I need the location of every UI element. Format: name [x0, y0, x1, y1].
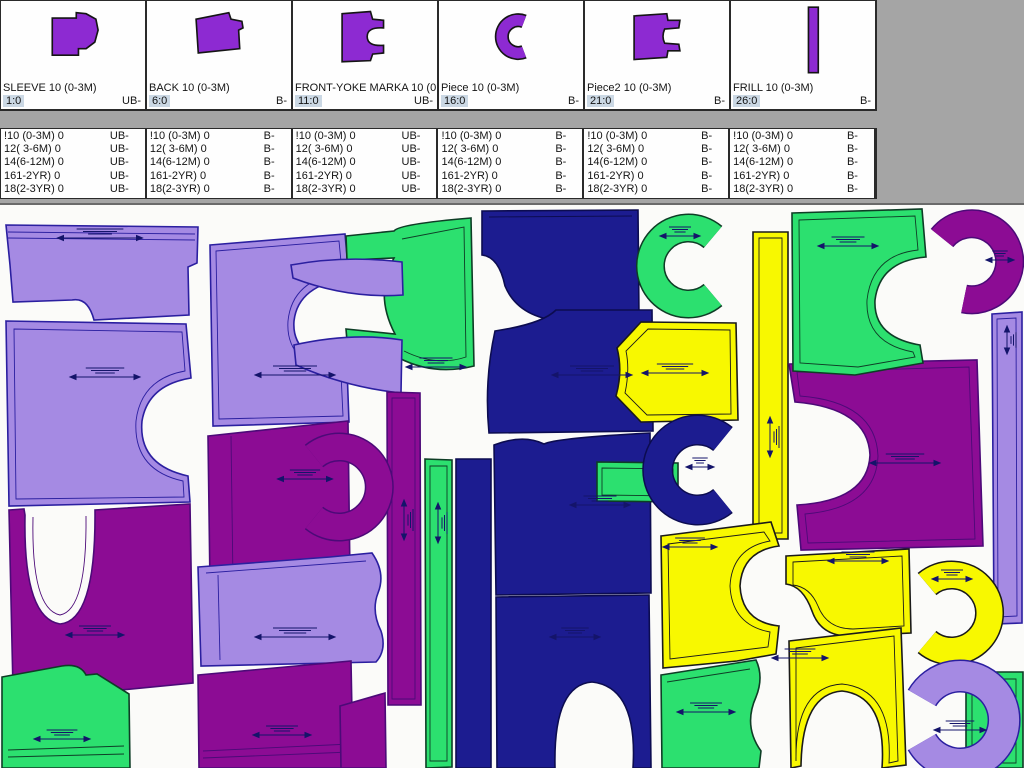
pattern-piece-yellow-piece-2[interactable] [786, 549, 911, 636]
piece-index-chip: 6:0 [149, 95, 170, 107]
piece-thumbnail [179, 5, 259, 77]
size-suffix: UB- [402, 130, 421, 143]
size-label: 12( 3-6M) 0 [587, 143, 644, 156]
piece-name: BACK 10 (0-3M) [149, 82, 290, 94]
size-label: 14(6-12M) 0 [441, 156, 501, 169]
marker-canvas[interactable] [0, 205, 1024, 768]
pattern-piece-bottom-purple[interactable] [198, 661, 353, 768]
pattern-piece-strip-lavender-right[interactable] [992, 312, 1022, 624]
size-row: 161-2YR) 0B- [733, 170, 874, 183]
size-row: 161-2YR) 0B- [150, 170, 291, 183]
piece-thumbnail [33, 5, 113, 77]
piece-index-chip: 26:0 [733, 95, 760, 107]
pattern-piece-sleeve-lavender[interactable] [198, 553, 383, 666]
marker-area [0, 203, 1024, 768]
size-label: 161-2YR) 0 [296, 170, 352, 183]
size-row: 12( 3-6M) 0B- [733, 143, 874, 156]
pattern-piece-green-bottom-mid[interactable] [661, 660, 761, 768]
piece-name: SLEEVE 10 (0-3M) [3, 82, 144, 94]
size-suffix: UB- [402, 170, 421, 183]
size-row: !10 (0-3M) 0B- [150, 130, 291, 143]
size-suffix: B- [555, 156, 566, 169]
piece-name: FRONT-YOKE MARKA 10 (0-3M) [295, 82, 436, 94]
size-label: !10 (0-3M) 0 [733, 130, 793, 143]
size-suffix: B- [847, 183, 858, 196]
size-suffix: B- [264, 143, 275, 156]
piece-card-row: SLEEVE 10 (0-3M)1:0UB-BACK 10 (0-3M)6:0B… [0, 0, 877, 111]
size-suffix: B- [847, 156, 858, 169]
pattern-piece-body-navy-4[interactable] [496, 595, 651, 768]
grain-line [686, 458, 714, 470]
size-list-box[interactable]: !10 (0-3M) 0B-12( 3-6M) 0B-14(6-12M) 0B-… [147, 129, 293, 198]
piece-suffix: B- [714, 95, 725, 107]
piece-index-chip: 16:0 [441, 95, 468, 107]
pattern-piece-strip-navy[interactable] [456, 459, 491, 768]
size-label: 14(6-12M) 0 [296, 156, 356, 169]
size-label: !10 (0-3M) 0 [150, 130, 210, 143]
piece-card-footer: 1:0UB- [3, 95, 141, 107]
size-row: 12( 3-6M) 0B- [587, 143, 728, 156]
pattern-piece-big-purple-right[interactable] [789, 360, 983, 550]
piece-card-footer: 26:0B- [733, 95, 871, 107]
seam-line [33, 516, 86, 615]
piece-thumbnail [617, 5, 697, 77]
size-suffix: B- [264, 156, 275, 169]
piece-index-chip: 1:0 [3, 95, 24, 107]
size-label: 12( 3-6M) 0 [4, 143, 61, 156]
size-suffix: B- [847, 143, 858, 156]
size-label: 12( 3-6M) 0 [150, 143, 207, 156]
app-window: SLEEVE 10 (0-3M)1:0UB-BACK 10 (0-3M)6:0B… [0, 0, 1024, 768]
piece-suffix: B- [860, 95, 871, 107]
piece-name: Piece 10 (0-3M) [441, 82, 582, 94]
piece-suffix: UB- [414, 95, 433, 107]
size-label: !10 (0-3M) 0 [441, 130, 501, 143]
size-label: 14(6-12M) 0 [150, 156, 210, 169]
pattern-piece-yellow-mid[interactable] [616, 322, 738, 422]
size-list-box[interactable]: !10 (0-3M) 0B-12( 3-6M) 0B-14(6-12M) 0B-… [730, 129, 876, 198]
size-suffix: B- [555, 130, 566, 143]
pattern-piece-strip-yellow[interactable] [753, 232, 788, 539]
piece-thumbnail [325, 5, 405, 77]
pattern-piece-body-navy-3[interactable] [494, 433, 651, 595]
piece-card[interactable]: Piece 10 (0-3M)16:0B- [439, 1, 585, 109]
size-suffix: B- [847, 170, 858, 183]
size-label: 12( 3-6M) 0 [733, 143, 790, 156]
size-row: 12( 3-6M) 0B- [441, 143, 582, 156]
size-label: 14(6-12M) 0 [733, 156, 793, 169]
piece-card[interactable]: Piece2 10 (0-3M)21:0B- [585, 1, 731, 109]
size-label: 18(2-3YR) 0 [150, 183, 210, 196]
size-suffix: UB- [110, 156, 129, 169]
size-label: 161-2YR) 0 [587, 170, 643, 183]
size-row: 14(6-12M) 0B- [733, 156, 874, 169]
size-suffix: UB- [110, 143, 129, 156]
size-row: 14(6-12M) 0UB- [296, 156, 437, 169]
size-row: 18(2-3YR) 0B- [587, 183, 728, 196]
size-suffix: B- [701, 183, 712, 196]
size-row: 12( 3-6M) 0B- [150, 143, 291, 156]
size-label: 18(2-3YR) 0 [441, 183, 501, 196]
size-label: 18(2-3YR) 0 [296, 183, 356, 196]
size-label: 161-2YR) 0 [150, 170, 206, 183]
size-suffix: B- [701, 170, 712, 183]
size-suffix: B- [555, 143, 566, 156]
size-label: !10 (0-3M) 0 [4, 130, 64, 143]
size-row: 14(6-12M) 0B- [587, 156, 728, 169]
size-row: 161-2YR) 0UB- [4, 170, 145, 183]
size-suffix: B- [847, 130, 858, 143]
size-label: !10 (0-3M) 0 [587, 130, 647, 143]
pattern-piece-c-purple-topright[interactable] [942, 224, 1010, 300]
size-suffix: B- [264, 130, 275, 143]
piece-suffix: B- [276, 95, 287, 107]
size-row: 14(6-12M) 0B- [150, 156, 291, 169]
size-label: 12( 3-6M) 0 [296, 143, 353, 156]
size-label: 14(6-12M) 0 [587, 156, 647, 169]
size-suffix: B- [555, 170, 566, 183]
size-label: 12( 3-6M) 0 [441, 143, 498, 156]
piece-index-chip: 21:0 [587, 95, 614, 107]
piece-card-footer: 6:0B- [149, 95, 287, 107]
size-list-box[interactable]: !10 (0-3M) 0B-12( 3-6M) 0B-14(6-12M) 0B-… [438, 129, 584, 198]
size-row: 14(6-12M) 0UB- [4, 156, 145, 169]
size-row: 18(2-3YR) 0B- [441, 183, 582, 196]
piece-name: FRILL 10 (0-3M) [733, 82, 874, 94]
size-label: 161-2YR) 0 [4, 170, 60, 183]
size-label: 161-2YR) 0 [441, 170, 497, 183]
pattern-piece-c-lavender-br[interactable] [922, 676, 1004, 764]
size-row: 18(2-3YR) 0B- [150, 183, 291, 196]
size-suffix: UB- [110, 170, 129, 183]
size-row: 12( 3-6M) 0UB- [296, 143, 437, 156]
size-row: !10 (0-3M) 0B- [587, 130, 728, 143]
piece-thumbnail [763, 5, 843, 77]
size-row: 18(2-3YR) 0UB- [4, 183, 145, 196]
pattern-piece-body-left[interactable] [6, 321, 191, 506]
size-suffix: B- [555, 183, 566, 196]
size-row: 18(2-3YR) 0UB- [296, 183, 437, 196]
size-suffix: B- [701, 130, 712, 143]
size-row: 161-2YR) 0UB- [296, 170, 437, 183]
size-row: !10 (0-3M) 0B- [733, 130, 874, 143]
size-row: !10 (0-3M) 0UB- [296, 130, 437, 143]
size-label: 161-2YR) 0 [733, 170, 789, 183]
pattern-piece-c-navy[interactable] [658, 430, 723, 510]
pattern-piece-back-top[interactable] [482, 210, 639, 321]
piece-card[interactable]: SLEEVE 10 (0-3M)1:0UB- [1, 1, 147, 109]
piece-card[interactable]: BACK 10 (0-3M)6:0B- [147, 1, 293, 109]
piece-card-footer: 16:0B- [441, 95, 579, 107]
size-label: 14(6-12M) 0 [4, 156, 64, 169]
size-row: !10 (0-3M) 0UB- [4, 130, 145, 143]
piece-card[interactable]: FRILL 10 (0-3M)26:0B- [731, 1, 877, 109]
size-suffix: UB- [402, 143, 421, 156]
piece-name: Piece2 10 (0-3M) [587, 82, 728, 94]
pattern-piece-yellow-front-1[interactable] [661, 522, 779, 668]
size-row: 161-2YR) 0B- [441, 170, 582, 183]
piece-suffix: UB- [122, 95, 141, 107]
size-list-box[interactable]: !10 (0-3M) 0B-12( 3-6M) 0B-14(6-12M) 0B-… [584, 129, 730, 198]
size-label: !10 (0-3M) 0 [296, 130, 356, 143]
size-suffix: UB- [110, 183, 129, 196]
size-list-row: !10 (0-3M) 0UB-12( 3-6M) 0UB-14(6-12M) 0… [0, 128, 877, 199]
size-suffix: B- [701, 143, 712, 156]
size-label: 18(2-3YR) 0 [733, 183, 793, 196]
size-row: !10 (0-3M) 0B- [441, 130, 582, 143]
piece-index-chip: 11:0 [295, 95, 322, 107]
size-suffix: B- [264, 170, 275, 183]
piece-card-footer: 21:0B- [587, 95, 725, 107]
piece-card[interactable]: FRONT-YOKE MARKA 10 (0-3M)11:0UB- [293, 1, 439, 109]
size-label: 18(2-3YR) 0 [587, 183, 647, 196]
size-row: 14(6-12M) 0B- [441, 156, 582, 169]
size-row: 161-2YR) 0B- [587, 170, 728, 183]
piece-thumbnail [471, 5, 551, 77]
size-suffix: UB- [402, 156, 421, 169]
pattern-piece-c-yellow[interactable] [927, 575, 990, 651]
size-row: 18(2-3YR) 0B- [733, 183, 874, 196]
pattern-piece-c-green-top[interactable] [650, 228, 713, 304]
size-suffix: B- [264, 183, 275, 196]
piece-suffix: B- [568, 95, 579, 107]
size-suffix: UB- [110, 130, 129, 143]
pattern-piece-bottom-purple-2[interactable] [340, 693, 386, 768]
size-suffix: UB- [402, 183, 421, 196]
piece-card-footer: 11:0UB- [295, 95, 433, 107]
size-row: 12( 3-6M) 0UB- [4, 143, 145, 156]
size-suffix: B- [701, 156, 712, 169]
size-label: 18(2-3YR) 0 [4, 183, 64, 196]
size-list-box[interactable]: !10 (0-3M) 0UB-12( 3-6M) 0UB-14(6-12M) 0… [293, 129, 439, 198]
size-list-box[interactable]: !10 (0-3M) 0UB-12( 3-6M) 0UB-14(6-12M) 0… [1, 129, 147, 198]
pattern-piece-front-u-purple[interactable] [9, 504, 193, 692]
